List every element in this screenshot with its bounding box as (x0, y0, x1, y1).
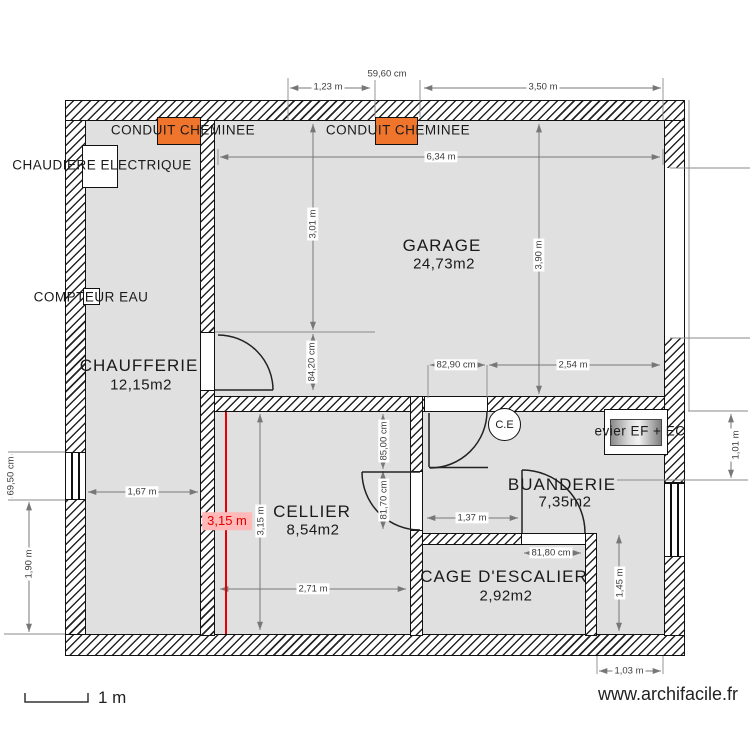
dim-6-34m: 6,34 m (424, 151, 457, 162)
dim-1-01m: 1,01 m (730, 428, 741, 461)
evier-label: evier EF + EC (595, 424, 686, 439)
floor-plan-canvas: CONDUIT CHEMINEE CONDUIT CHEMINEE CHAUDI… (0, 0, 750, 750)
dim-82-90cm: 82,90 cm (434, 359, 477, 370)
chaudiere-electrique-label: CHAUDIERE ELECTRIQUE (12, 158, 192, 173)
door-opening-garage-buanderie (424, 396, 488, 412)
dim-2-71m: 2,71 m (296, 583, 329, 594)
wall-bottom (65, 634, 685, 656)
door-opening-cellier-buanderie (410, 471, 423, 531)
dim-69-50cm: 69,50 cm (5, 454, 16, 497)
dim-1-90m: 1,90 m (23, 547, 34, 580)
room-area-cage-escalier: 2,92m2 (479, 588, 532, 605)
wall-cellier-right-upper (410, 396, 423, 472)
window-pane (670, 484, 672, 556)
door-opening-buanderie-cage (521, 533, 586, 545)
dim-3-15m: 3,15 m (255, 504, 266, 537)
dim-3-50m: 3,50 m (526, 81, 559, 92)
room-area-buanderie: 7,35m2 (538, 494, 591, 511)
wall-right-lower (664, 556, 685, 636)
room-name-cellier: CELLIER (273, 502, 351, 522)
wall-chaufferie-upper (200, 120, 215, 333)
room-name-garage: GARAGE (403, 236, 482, 256)
dim-1-67m: 1,67 m (125, 486, 158, 497)
window-pane (677, 484, 679, 556)
room-name-buanderie: BUANDERIE (508, 475, 616, 495)
dim-2-54m: 2,54 m (556, 359, 589, 370)
scale-label: 1 m (98, 688, 126, 708)
window-pane (71, 453, 73, 499)
wall-garage-bottom-left (214, 396, 425, 412)
wall-right-upper (664, 120, 685, 169)
door-opening-chaufferie-garage (200, 332, 215, 391)
window-right (664, 483, 685, 557)
conduit-cheminee-label-2: CONDUIT CHEMINEE (326, 123, 470, 138)
dim-1-23m: 1,23 m (311, 81, 344, 92)
dim-3-01m: 3,01 m (307, 207, 318, 240)
dim-81-70cm: 81,70 cm (378, 478, 389, 521)
dim-3-90m: 3,90 m (533, 238, 544, 271)
room-area-cellier: 8,54m2 (286, 522, 339, 539)
dim-1-45m: 1,45 m (614, 566, 625, 599)
room-name-cage-escalier: CAGE D'ESCALIER (420, 567, 588, 587)
window-left (65, 452, 86, 500)
window-pane (78, 453, 80, 499)
dim-59-60cm: 59,60 cm (365, 68, 408, 79)
wall-left (65, 120, 86, 636)
dim-1-37m: 1,37 m (455, 512, 488, 523)
dim-1-03m: 1,03 m (612, 665, 645, 676)
wall-cage-top (422, 533, 522, 545)
conduit-cheminee-label-1: CONDUIT CHEMINEE (111, 123, 255, 138)
garage-bay-opening (664, 168, 685, 338)
dim-81-80cm: 81,80 cm (529, 547, 572, 558)
watermark: www.archifacile.fr (598, 684, 738, 705)
dim-85-00cm: 85,00 cm (378, 419, 389, 462)
dim-3-15m-red: 3,15 m (202, 512, 252, 530)
compteur-eau-label: COMPTEUR EAU (34, 290, 149, 305)
room-area-garage: 24,73m2 (413, 256, 475, 273)
floor-area (85, 120, 665, 636)
chauffe-eau-label: C.E (495, 419, 513, 431)
room-area-chaufferie: 12,15m2 (110, 377, 172, 394)
dim-84-20cm: 84,20 cm (306, 340, 317, 383)
room-name-chaufferie: CHAUFFERIE (80, 356, 199, 376)
scale-bar (25, 693, 88, 702)
